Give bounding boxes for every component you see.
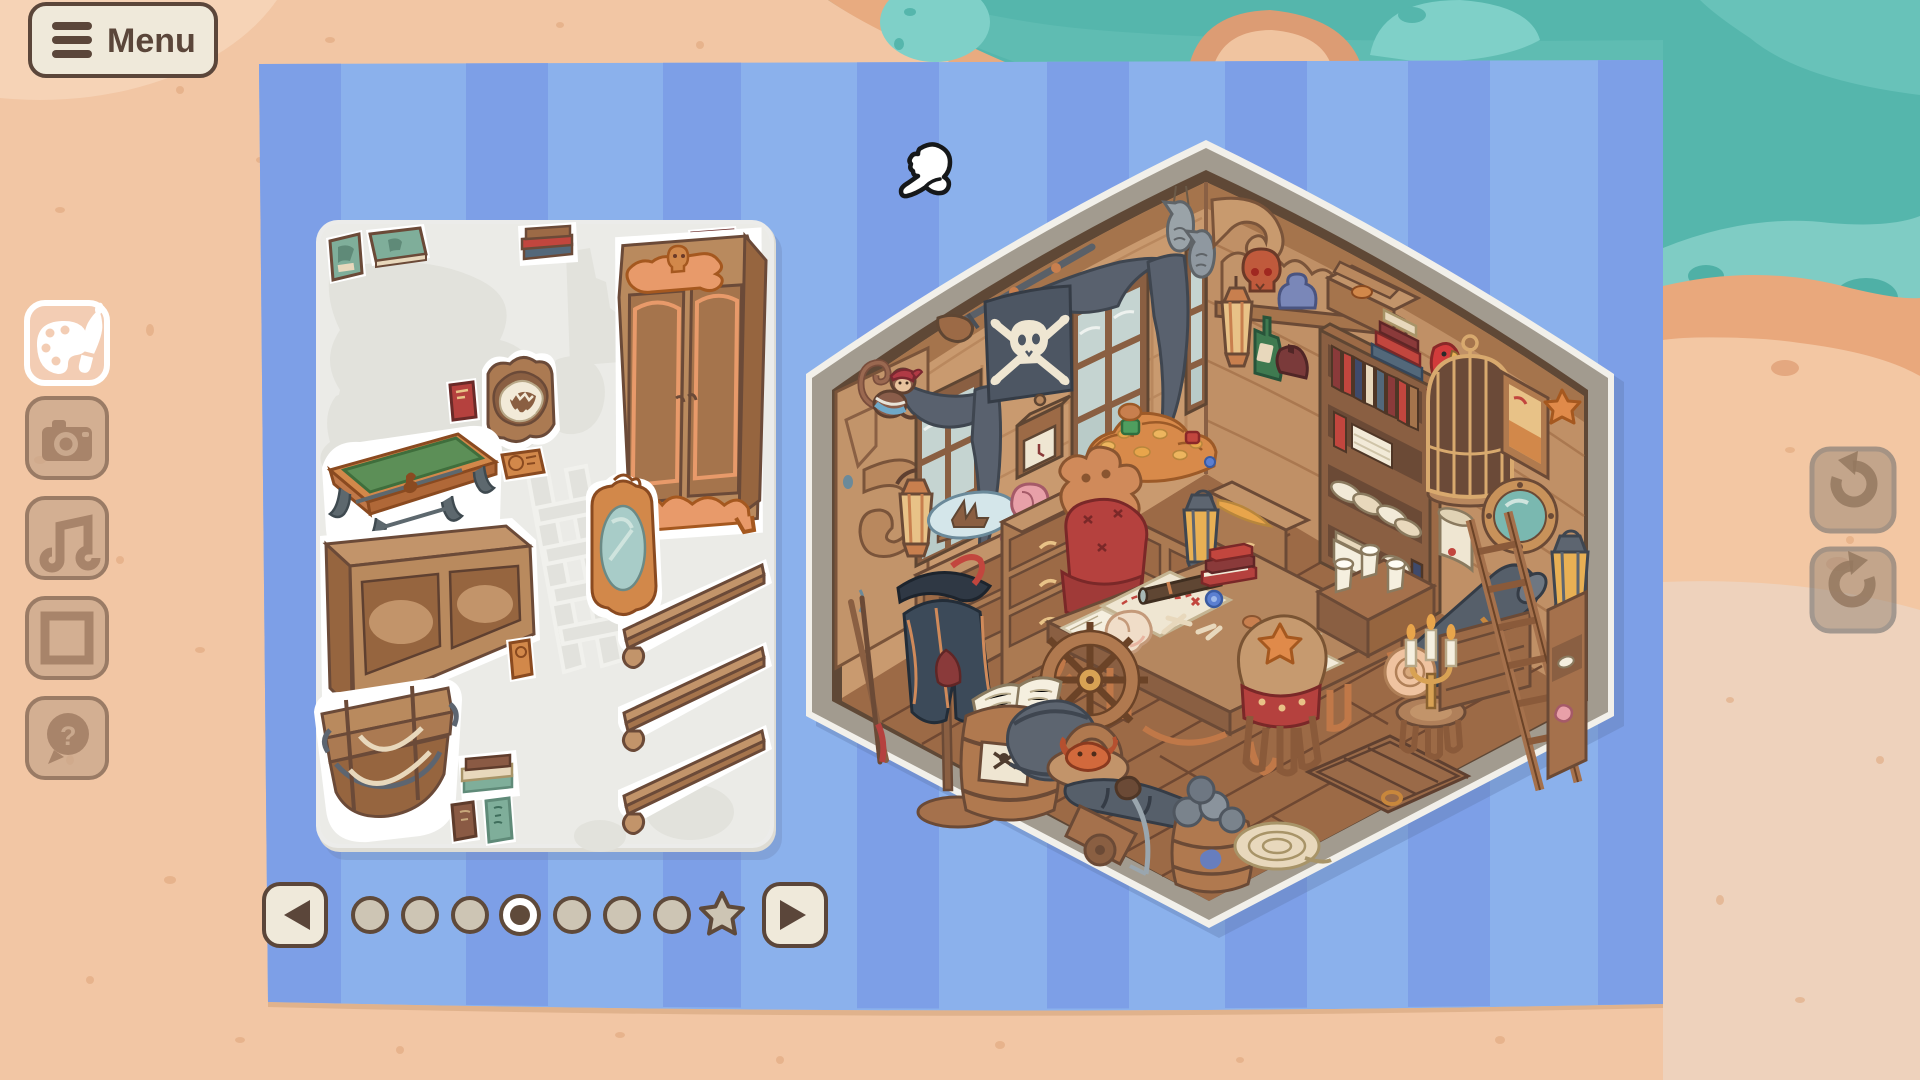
- svg-text:Menu: Menu: [107, 22, 196, 60]
- svg-text:?: ?: [60, 721, 77, 751]
